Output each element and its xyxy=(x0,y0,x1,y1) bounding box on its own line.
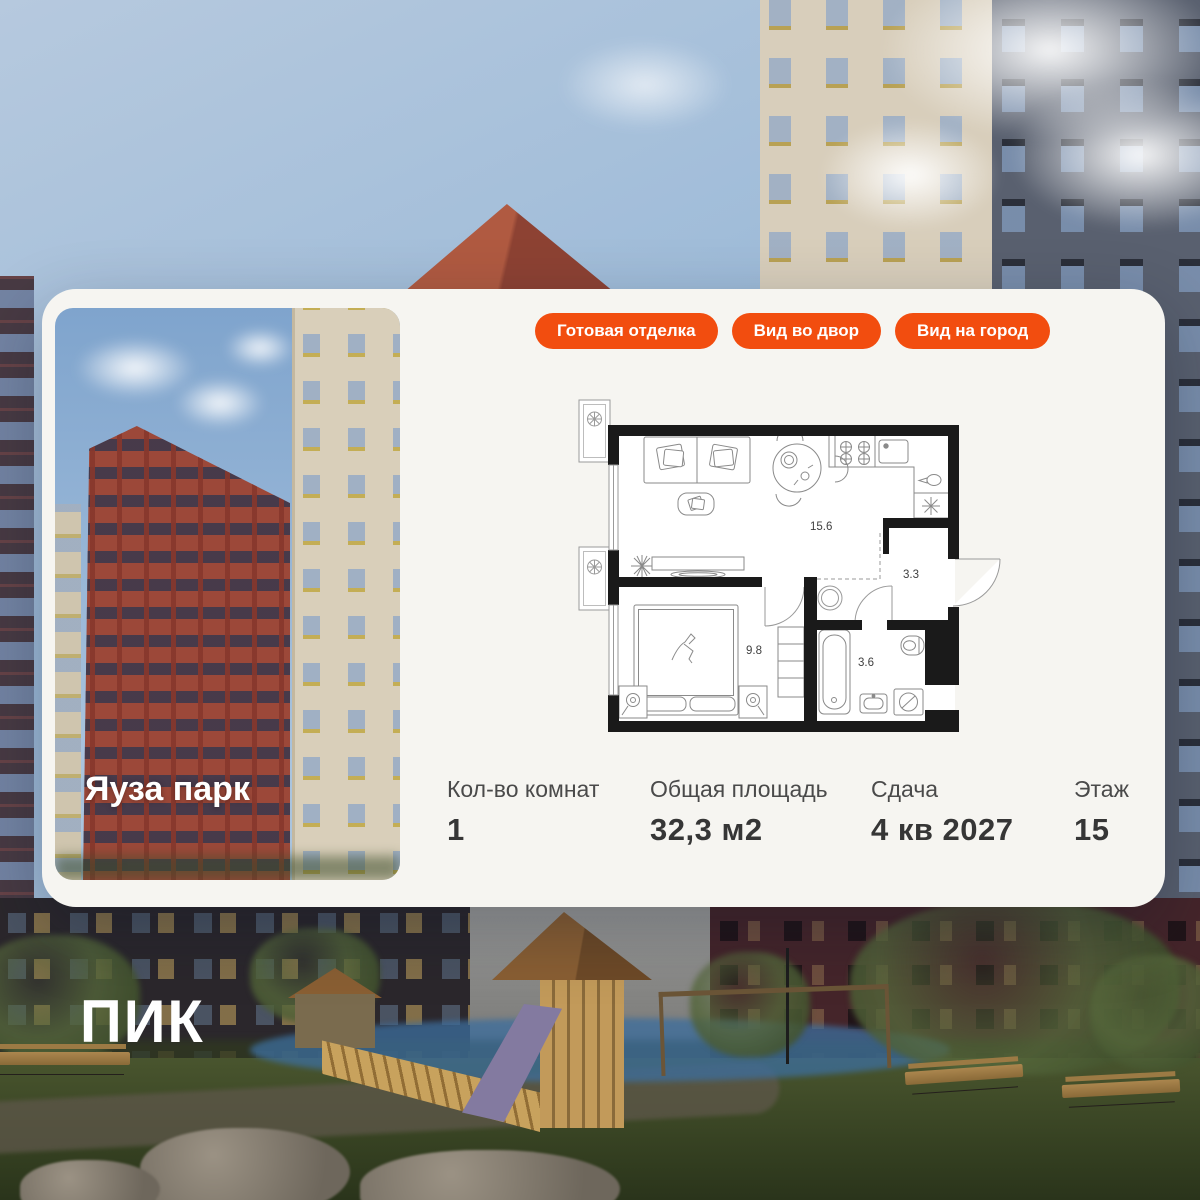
playground-tower xyxy=(540,978,624,1128)
sink-icon xyxy=(879,440,908,463)
bathtub xyxy=(819,630,850,714)
stat-value: 1 xyxy=(447,812,599,848)
room-label-living-kitchen: 15.6 xyxy=(810,521,832,533)
playground-climbing-frame xyxy=(659,984,892,1076)
stat-value: 4 кв 2027 xyxy=(871,812,1014,848)
background-red-roof xyxy=(404,204,614,292)
listing-screenshot: ПИК Яуза парк Готовая отделка Вид во дво… xyxy=(0,0,1200,1200)
badge-city-view[interactable]: Вид на город xyxy=(895,313,1050,349)
stat-label: Этаж xyxy=(1074,776,1129,803)
pik-logo: ПИК xyxy=(80,987,205,1057)
stat-floor: Этаж 15 xyxy=(1074,776,1129,848)
plant xyxy=(631,555,653,577)
wardrobe xyxy=(778,627,804,697)
cloud xyxy=(75,338,195,398)
stat-value: 15 xyxy=(1074,812,1129,848)
entrance-door xyxy=(953,559,1000,606)
fridge-snowflake-icon xyxy=(922,497,940,515)
cloud xyxy=(820,120,1000,230)
cloud xyxy=(175,378,265,428)
badge-finish[interactable]: Готовая отделка xyxy=(535,313,718,349)
room-label-bathroom: 3.6 xyxy=(858,657,874,669)
tree xyxy=(1090,955,1200,1070)
room-label-bedroom: 9.8 xyxy=(746,645,762,657)
ac-box-bottom xyxy=(579,547,610,610)
bathroom-sink xyxy=(860,694,887,713)
stat-rooms: Кол-во комнат 1 xyxy=(447,776,599,848)
floor-plan: 15.6 3.3 9.8 3.6 xyxy=(572,390,1002,740)
badge-row: Готовая отделка Вид во двор Вид на город xyxy=(535,313,1050,349)
toilet xyxy=(901,636,924,655)
nightstand-right xyxy=(739,686,767,718)
bed xyxy=(634,605,738,715)
ac-box-top xyxy=(579,400,610,462)
hall-mirror xyxy=(818,586,842,610)
listing-card[interactable]: Яуза парк Готовая отделка Вид во двор Ви… xyxy=(42,289,1165,907)
stat-value: 32,3 м2 xyxy=(650,812,828,848)
stat-label: Общая площадь xyxy=(650,776,828,803)
stat-delivery: Сдача 4 кв 2027 xyxy=(871,776,1014,848)
cloud xyxy=(225,328,295,368)
nightstand-left xyxy=(619,686,647,718)
coffee-table xyxy=(678,493,714,515)
stats-row: Кол-во комнат 1 Общая площадь 32,3 м2 Сд… xyxy=(42,776,1165,876)
stat-label: Кол-во комнат xyxy=(447,776,599,803)
fan-icon xyxy=(588,560,602,574)
stat-area: Общая площадь 32,3 м2 xyxy=(650,776,828,848)
window-top xyxy=(609,465,618,550)
playhouse xyxy=(295,994,375,1048)
window-bottom xyxy=(609,605,618,695)
sofa xyxy=(644,437,750,483)
washing-machine xyxy=(894,689,923,715)
floor-plan-svg: 15.6 3.3 9.8 3.6 xyxy=(572,390,1002,740)
badge-yard-view[interactable]: Вид во двор xyxy=(732,313,881,349)
fan-icon xyxy=(588,412,602,426)
room-label-hall: 3.3 xyxy=(903,569,919,581)
cloud xyxy=(560,40,730,130)
stat-label: Сдача xyxy=(871,776,1014,803)
